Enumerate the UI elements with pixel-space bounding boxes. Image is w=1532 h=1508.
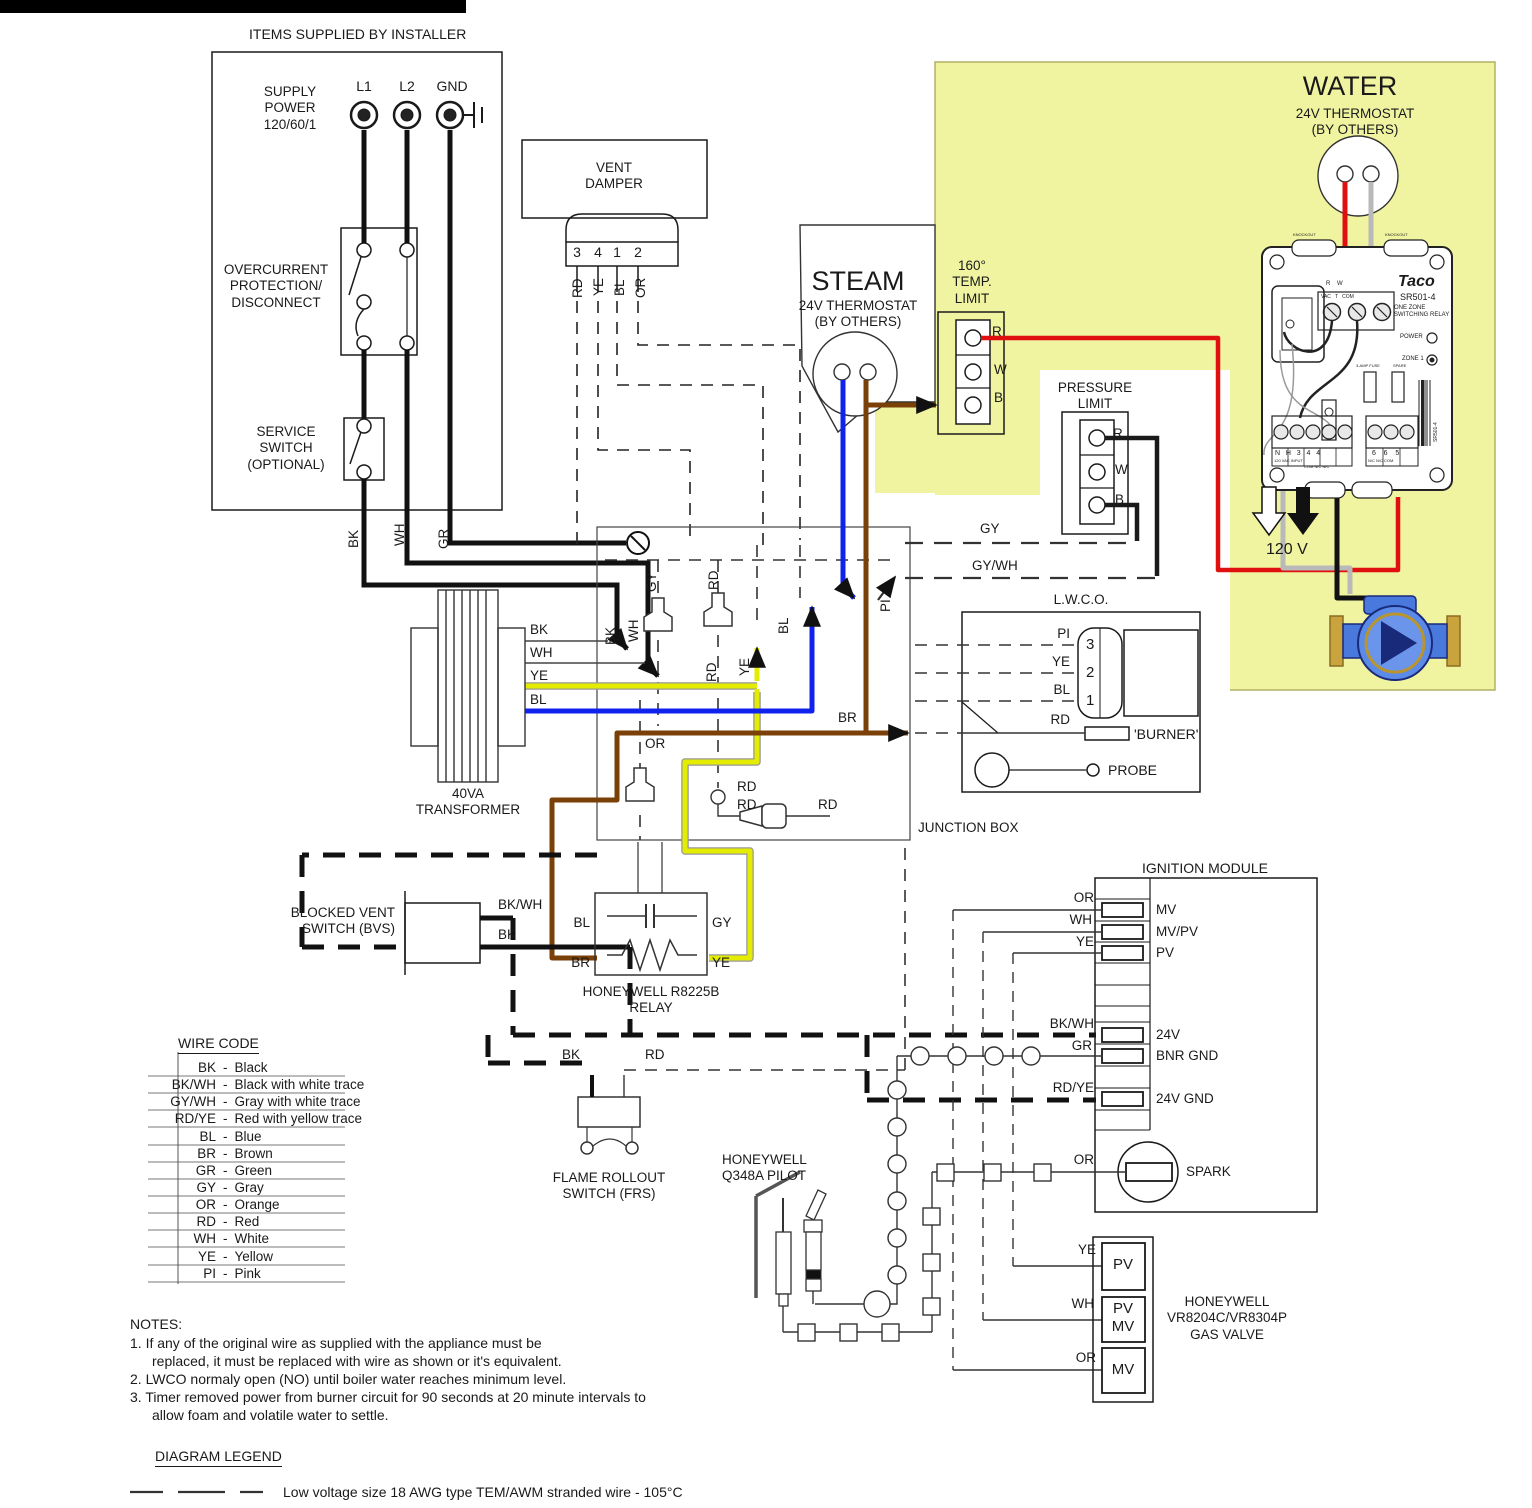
- valve-ye-label: YE: [1078, 1242, 1096, 1258]
- gy-run-label: GY: [980, 521, 1000, 537]
- pressure-limit-w: W: [1115, 462, 1128, 478]
- wire-label-bk: BK: [346, 530, 362, 548]
- junction-box-label: JUNCTION BOX: [918, 820, 1019, 836]
- jb-br-label: BR: [838, 710, 857, 726]
- relay-right-sub: N/C N/C COM: [1368, 459, 1393, 463]
- r8225-br: BR: [571, 955, 590, 971]
- supply-wires: [364, 130, 658, 676]
- term-pv: PV: [1156, 945, 1174, 961]
- wire-code-row: GR-Green: [98, 1163, 418, 1178]
- note-line-2: 2. LWCO normaly open (NO) until boiler w…: [130, 1371, 566, 1388]
- frs-rd-label: RD: [645, 1047, 665, 1063]
- r8225-bl: BL: [573, 915, 590, 931]
- lwco-box: [962, 612, 1200, 792]
- bvs-box: [405, 891, 480, 975]
- term-mv: MV: [1156, 902, 1176, 918]
- vent-pin-4: 4: [594, 244, 602, 261]
- gas-valve-title: HONEYWELL VR8204C/VR8304P GAS VALVE: [1167, 1294, 1287, 1343]
- wire-code-row: BR-Brown: [98, 1146, 418, 1161]
- lwco-n3: 3: [1086, 636, 1094, 654]
- vent-pin-2: 2: [634, 244, 642, 261]
- vent-pin-3: 3: [573, 244, 581, 261]
- term-24v: 24V: [1156, 1027, 1180, 1043]
- r8225-title: HONEYWELL R8225B RELAY: [583, 984, 720, 1017]
- wiring-diagram-canvas: ITEMS SUPPLIED BY INSTALLER SUPPLY POWER…: [0, 0, 1532, 1508]
- spark-or-label: OR: [1074, 1152, 1094, 1168]
- circulator-pump-icon: [1330, 596, 1460, 680]
- wire-label-wh: WH: [392, 524, 408, 547]
- 24vgnd-rdye-label: RD/YE: [1053, 1080, 1094, 1096]
- pv-ye-label: YE: [1076, 934, 1094, 950]
- overcurrent-label: OVERCURRENT PROTECTION/ DISCONNECT: [224, 262, 328, 311]
- probe-label: PROBE: [1108, 762, 1157, 779]
- jb-or-label: OR: [645, 736, 665, 752]
- note-line-1b: replaced, it must be replaced with wire …: [152, 1353, 562, 1370]
- frs-title: FLAME ROLLOUT SWITCH (FRS): [553, 1170, 666, 1203]
- knockout-label-1: KNOCKOUT: [1293, 233, 1316, 237]
- wire-code-row: OR-Orange: [98, 1197, 418, 1212]
- term-bnr-gnd: BNR GND: [1156, 1048, 1218, 1064]
- jb-ye-label: YE: [737, 658, 753, 676]
- knockout-label-2: KNOCKOUT: [1385, 233, 1408, 237]
- ignition-module: [1095, 878, 1317, 1212]
- lwco-ye: YE: [1052, 654, 1070, 670]
- splice-rd-label-2: RD: [737, 797, 757, 813]
- power-label: POWER: [1400, 334, 1423, 341]
- pressure-limit-r: R: [1113, 426, 1123, 442]
- term-spark: SPARK: [1186, 1164, 1231, 1180]
- tr-bk-label: BK: [530, 622, 548, 638]
- wire-code-row: WH-White: [98, 1231, 418, 1246]
- wire-code-row: BK/WH-Black with white trace: [98, 1077, 418, 1092]
- taco-model: SR501-4: [1400, 292, 1436, 303]
- note-line-1: 1. If any of the original wire as suppli…: [130, 1335, 542, 1352]
- spare-label: SPARE: [1393, 364, 1406, 368]
- lwco-n2: 2: [1086, 664, 1094, 682]
- temp-limit-w: W: [994, 362, 1007, 378]
- relay-left-sub: 120 VAC INPUT: [1274, 459, 1303, 463]
- bnr-gr-label: GR: [1072, 1038, 1092, 1054]
- vent-wire-bl: BL: [612, 279, 628, 296]
- vent-pin-1: 1: [613, 244, 621, 261]
- lwco-bl: BL: [1053, 682, 1070, 698]
- burner-label: 'BURNER': [1134, 726, 1198, 743]
- relay-top-terms: R W: [1326, 281, 1343, 288]
- relay-side-model: SR501-4: [1434, 422, 1440, 442]
- legend-title: DIAGRAM LEGEND: [155, 1448, 282, 1467]
- term-24v-gnd: 24V GND: [1156, 1091, 1214, 1107]
- terminal-gnd-label: GND: [436, 78, 467, 95]
- white-arrow-icon: [1253, 487, 1285, 535]
- vent-damper-wires: [577, 280, 800, 545]
- gywh-run-label: GY/WH: [972, 558, 1018, 574]
- relay-top-terms2: VAC T COM: [1321, 295, 1354, 301]
- legend-low-voltage: Low voltage size 18 AWG type TEM/AWM str…: [283, 1484, 683, 1501]
- diagram-wiring: [0, 0, 1532, 1508]
- jb-bl-label: BL: [776, 617, 792, 634]
- ignition-title: IGNITION MODULE: [1142, 860, 1268, 877]
- vent-damper-label: VENT DAMPER: [585, 160, 643, 193]
- pi-arrow: [878, 577, 895, 600]
- note-line-3: 3. Timer removed power from burner circu…: [130, 1389, 646, 1406]
- temp-limit-title: 160° TEMP. LIMIT: [952, 258, 992, 307]
- ground-icon: [463, 102, 482, 128]
- jb-bk-label: BK: [603, 627, 619, 645]
- wire-code-title: WIRE CODE: [178, 1035, 259, 1054]
- notes-title: NOTES:: [130, 1316, 182, 1333]
- volt-120-label: 120 V: [1266, 540, 1308, 560]
- wire-code-row: BL-Blue: [98, 1129, 418, 1144]
- mvpv-wh-label: WH: [1070, 912, 1093, 928]
- r8225b-relay: [595, 842, 707, 975]
- tr-ye-label: YE: [530, 668, 548, 684]
- wire-label-gr: GR: [436, 529, 452, 549]
- service-switch-label: SERVICE SWITCH (OPTIONAL): [247, 424, 324, 473]
- pressure-limit-b: B: [1115, 492, 1124, 508]
- tr-wh-label: WH: [530, 645, 553, 661]
- taco-brand: Taco: [1398, 272, 1435, 292]
- valve-wh-label: WH: [1072, 1296, 1095, 1312]
- note-line-3b: allow foam and volatile water to settle.: [152, 1407, 389, 1424]
- mv-or-label: OR: [1074, 890, 1094, 906]
- lwco-pi: PI: [1057, 626, 1070, 642]
- pressure-limit: [1062, 412, 1157, 576]
- r8225-gy: GY: [712, 915, 732, 931]
- fuse-label: 3-AMP FUSE: [1356, 364, 1380, 368]
- transformer-label: 40VA TRANSFORMER: [416, 786, 520, 819]
- taco-type: ONE ZONE SWITCHING RELAY: [1394, 305, 1449, 318]
- supply-power-label: SUPPLY POWER 120/60/1: [264, 84, 317, 133]
- jb-pi-label: PI: [878, 599, 894, 612]
- gray-runs: [905, 543, 1157, 578]
- wire-code-row: GY-Gray: [98, 1180, 418, 1195]
- wire-code-row: GY/WH-Gray with white trace: [98, 1094, 418, 1109]
- water-thermostat-icon: [1318, 136, 1398, 216]
- splice-rd-label-3: RD: [818, 797, 838, 813]
- pilot-assembly-icon: [756, 1172, 826, 1306]
- service-switch-box: [344, 418, 384, 480]
- bvs-label: BLOCKED VENT SWITCH (BVS): [291, 905, 395, 938]
- zone-label: ZONE 1: [1402, 356, 1424, 363]
- 24v-bkwh-label: BK/WH: [1050, 1016, 1094, 1032]
- spark-terminal-icon: [1118, 1142, 1178, 1202]
- vent-wire-rd: RD: [570, 279, 586, 299]
- jb-wh-label: WH: [626, 620, 642, 643]
- temp-limit-b: B: [994, 390, 1003, 406]
- r8225-ye: YE: [712, 955, 730, 971]
- steam-sub: 24V THERMOSTAT (BY OTHERS): [799, 298, 918, 331]
- water-title: WATER: [1303, 70, 1398, 103]
- jb-rd-label-top: RD: [706, 571, 722, 591]
- jb-rd-label-mid: RD: [704, 663, 720, 683]
- lwco-n1: 1: [1086, 692, 1094, 710]
- valve-pvmv: PV MV: [1112, 1300, 1135, 1337]
- valve-mv: MV: [1112, 1361, 1135, 1379]
- wire-code-row: YE-Yellow: [98, 1249, 418, 1264]
- wire-code-row: RD/YE-Red with yellow trace: [98, 1111, 418, 1126]
- pressure-limit-title: PRESSURE LIMIT: [1058, 380, 1132, 413]
- frs-bk-label: BK: [562, 1047, 580, 1063]
- bvs-bkwh: BK/WH: [498, 897, 542, 913]
- transformer-icon: [411, 590, 525, 782]
- pilot-title: HONEYWELL Q348A PILOT: [722, 1152, 807, 1185]
- line-voltage-dashed: [302, 855, 1096, 1100]
- steam-title: STEAM: [811, 265, 904, 298]
- installer-title: ITEMS SUPPLIED BY INSTALLER: [249, 26, 466, 43]
- term-mvpv: MV/PV: [1156, 924, 1198, 940]
- terminal-l2-label: L2: [399, 78, 415, 95]
- relay-left-sub2: COM N/C N/C: [1304, 465, 1329, 469]
- wire-code-row: PI-Pink: [98, 1266, 418, 1281]
- wire-code-row: BK-Black: [98, 1060, 418, 1075]
- valve-or-label: OR: [1076, 1350, 1096, 1366]
- frs-box: [578, 1075, 640, 1154]
- valve-pv: PV: [1113, 1256, 1133, 1274]
- bvs-bk: BK: [498, 927, 516, 943]
- terminal-l1-label: L1: [356, 78, 372, 95]
- tr-bl-label: BL: [530, 692, 547, 708]
- vent-wire-or: OR: [633, 278, 649, 298]
- splice-rd-label-1: RD: [737, 779, 757, 795]
- jb-gy-label: GY: [644, 572, 660, 592]
- burner-link-icon: [1085, 727, 1129, 740]
- lwco-title: L.W.C.O.: [1054, 592, 1109, 608]
- wire-code-row: RD-Red: [98, 1214, 418, 1229]
- vent-wire-ye: YE: [591, 278, 607, 296]
- temp-limit-r: R: [992, 324, 1002, 340]
- lwco-rd: RD: [1051, 712, 1071, 728]
- water-sub: 24V THERMOSTAT (BY OTHERS): [1296, 106, 1415, 139]
